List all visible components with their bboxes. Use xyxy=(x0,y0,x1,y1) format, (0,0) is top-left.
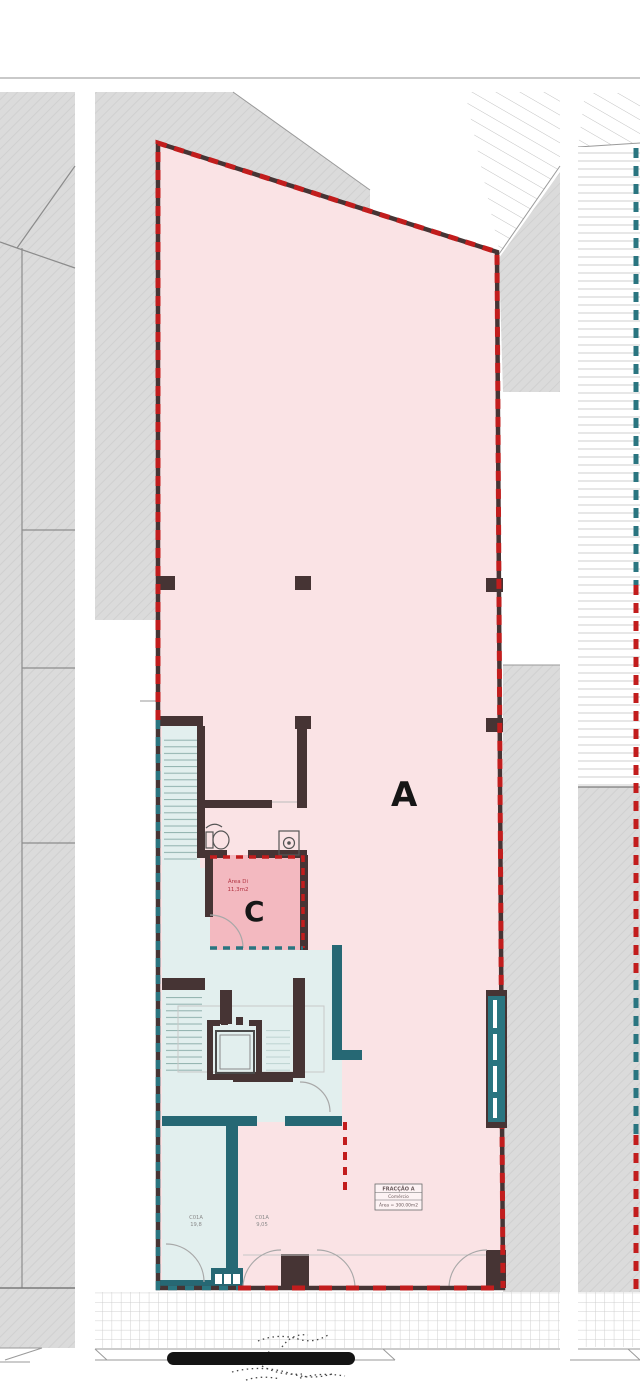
title-block-title: FRACÇÃO A xyxy=(382,1186,414,1193)
right-neighbor-panel xyxy=(570,93,640,1360)
scale-bar xyxy=(167,1352,355,1365)
window-icon xyxy=(486,990,507,1128)
door-label-left-value: 19,8 xyxy=(190,1222,202,1228)
door-label-right: C01A 9,05 xyxy=(255,1215,269,1228)
fraction-c-letter: C xyxy=(244,895,265,928)
right-sidewalk xyxy=(578,1292,640,1347)
door-label-right-code: C01A xyxy=(255,1215,269,1221)
fraction-c-area-label-2: 11,3m2 xyxy=(227,887,248,893)
plan-screenshot: A C Área Di 11,3m2 FRACÇÃO A Comércio Ár… xyxy=(0,0,640,1382)
sidewalk xyxy=(95,1292,560,1348)
door-label-left-code: C01A xyxy=(189,1215,203,1221)
right-roof-lines xyxy=(578,147,640,787)
title-block-area: Área = 300.00m2 xyxy=(379,1202,418,1209)
left-neighbor-mass xyxy=(0,92,75,1348)
neighbor-mass-right-lower xyxy=(503,665,560,1292)
right-hatch-roof xyxy=(578,93,640,147)
door-label-left: C01A 19,8 xyxy=(189,1215,203,1228)
stairs-icon xyxy=(266,1030,290,1074)
title-block-use: Comércio xyxy=(388,1193,409,1200)
fraction-a-letter: A xyxy=(391,775,418,815)
divider-line xyxy=(0,77,640,79)
right-neighbor-mass xyxy=(578,787,640,1292)
door-label-right-value: 9,05 xyxy=(256,1222,268,1228)
fraction-c-area-label-1: Área Di xyxy=(228,878,249,885)
stairs-icon xyxy=(164,736,197,862)
neighbor-mass-left xyxy=(95,92,158,620)
floor-plan-sheet: A C Área Di 11,3m2 FRACÇÃO A Comércio Ár… xyxy=(0,0,640,1382)
left-neighbor-panel xyxy=(0,92,75,1362)
main-plan-panel: A C Área Di 11,3m2 FRACÇÃO A Comércio Ár… xyxy=(95,92,560,1380)
title-block: FRACÇÃO A Comércio Área = 300.00m2 xyxy=(375,1184,422,1210)
